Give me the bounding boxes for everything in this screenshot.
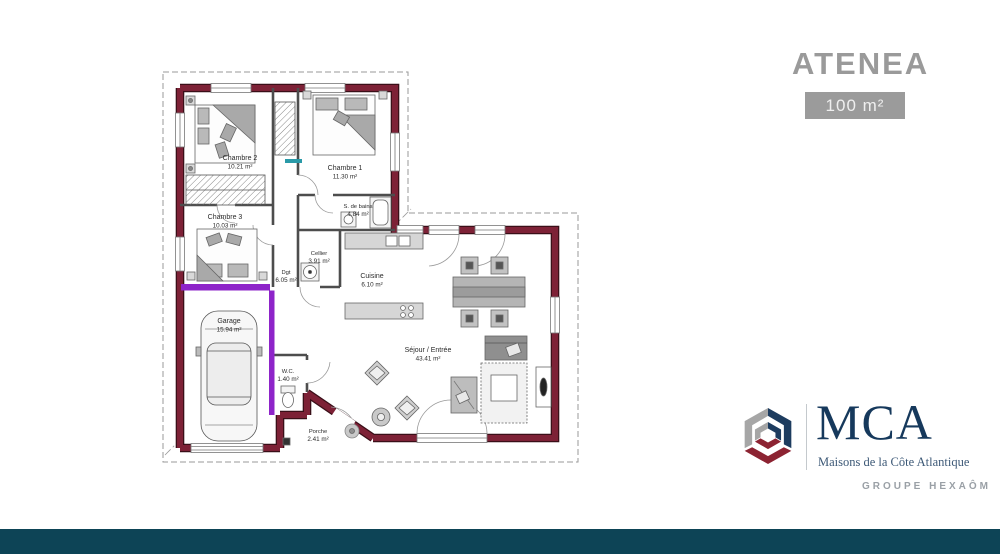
tv-cabinet <box>451 377 477 413</box>
room-area-chambre3: 10.03 m² <box>213 223 238 230</box>
mca-cube-logo-icon <box>740 404 796 468</box>
room-label-sejour: Séjour / Entrée <box>405 347 452 354</box>
room-area-sdb: 4.84 m² <box>347 211 368 218</box>
room-area-sejour: 43.41 m² <box>416 356 441 363</box>
room-area-dgt: 6.05 m² <box>275 277 296 284</box>
room-label-dgt: Dgt <box>281 270 290 276</box>
room-area-cuisine: 6.10 m² <box>361 282 382 289</box>
page-title: ATENEA <box>792 46 929 82</box>
floor-plan: Chambre 2 10.21 m² Chambre 1 11.30 m² Ch… <box>155 55 595 465</box>
sill-accent <box>285 159 302 163</box>
room-label-porche: Porche <box>309 429 327 435</box>
room-label-chambre1: Chambre 1 <box>328 165 363 172</box>
room-label-wc: W.C. <box>282 369 295 375</box>
area-badge: 100 m² <box>805 92 905 119</box>
brand-group: GROUPE HEXAÔM <box>862 481 991 492</box>
sofa <box>485 336 527 360</box>
brand-name: MCA <box>816 396 933 448</box>
room-label-chambre3: Chambre 3 <box>208 214 243 221</box>
room-area-chambre1: 11.30 m² <box>333 174 357 181</box>
bathtub <box>370 197 391 228</box>
room-area-wc: 1.40 m² <box>277 376 298 383</box>
bed-chambre1 <box>303 91 387 155</box>
garage-door <box>191 444 263 453</box>
rug-coffee-table <box>481 363 527 423</box>
room-area-chambre2: 10.21 m² <box>228 164 253 171</box>
bed-chambre3 <box>187 229 267 281</box>
hall-closet <box>275 102 295 155</box>
room-area-porche: 2.41 m² <box>307 436 328 443</box>
room-label-garage: Garage <box>217 318 240 325</box>
page-canvas: Chambre 2 10.21 m² Chambre 1 11.30 m² Ch… <box>0 0 1000 554</box>
bottom-bar <box>0 529 1000 554</box>
brand-tagline: Maisons de la Côte Atlantique <box>818 455 969 470</box>
room-area-garage: 15.94 m² <box>217 327 242 334</box>
fireplace <box>536 367 551 407</box>
room-area-cellier: 3.91 m² <box>308 258 329 265</box>
room-label-cellier: Cellier <box>311 251 327 257</box>
room-label-sdb: S. de bains <box>343 204 372 210</box>
room-label-cuisine: Cuisine <box>360 273 383 280</box>
brand-divider <box>806 404 807 470</box>
toilet <box>281 386 295 408</box>
water-heater <box>301 263 319 281</box>
room-label-chambre2: Chambre 2 <box>223 155 258 162</box>
